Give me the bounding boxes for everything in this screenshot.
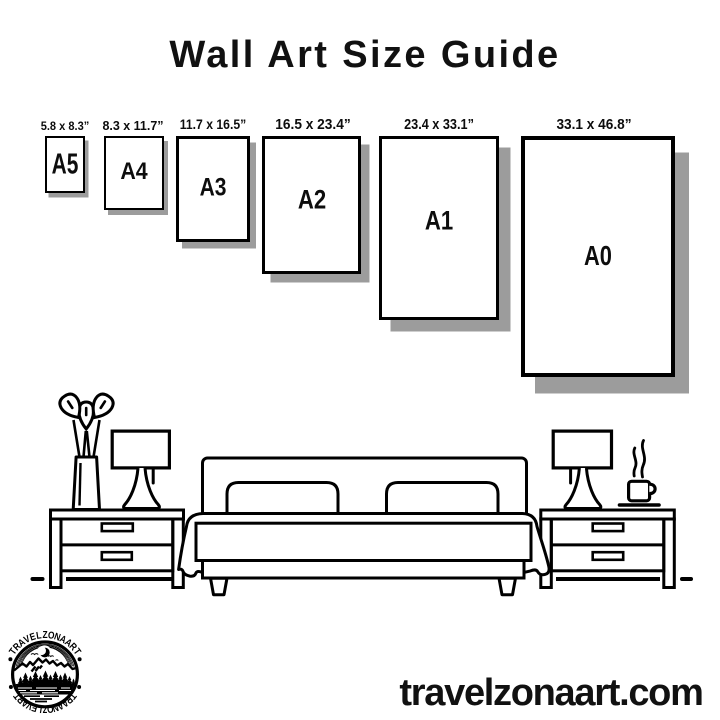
svg-text:L: L <box>35 630 42 642</box>
